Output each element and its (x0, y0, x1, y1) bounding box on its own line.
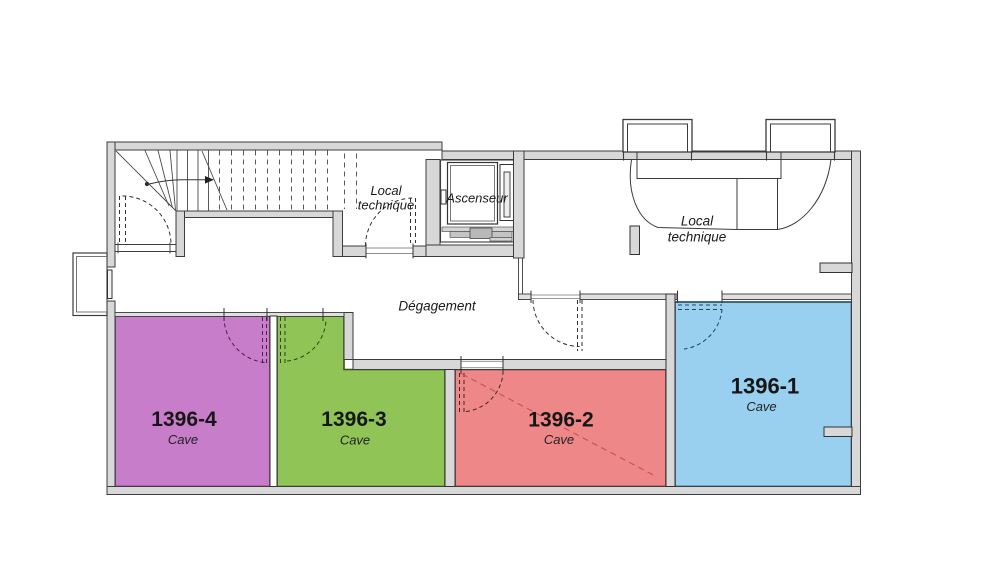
svg-text:technique: technique (358, 198, 414, 213)
svg-text:1396-1: 1396-1 (731, 374, 800, 399)
svg-text:Cave: Cave (746, 399, 776, 414)
svg-text:1396-2: 1396-2 (528, 409, 593, 432)
svg-text:Dégagement: Dégagement (398, 299, 477, 314)
svg-text:Ascenseur: Ascenseur (445, 191, 508, 206)
svg-text:Local: Local (681, 214, 714, 229)
svg-text:Cave: Cave (340, 433, 370, 448)
svg-text:Cave: Cave (168, 432, 198, 447)
svg-text:1396-3: 1396-3 (321, 408, 386, 431)
svg-text:Cave: Cave (544, 432, 574, 447)
svg-text:technique: technique (668, 230, 727, 245)
svg-text:1396-4: 1396-4 (151, 408, 217, 431)
svg-text:Local: Local (370, 183, 402, 198)
